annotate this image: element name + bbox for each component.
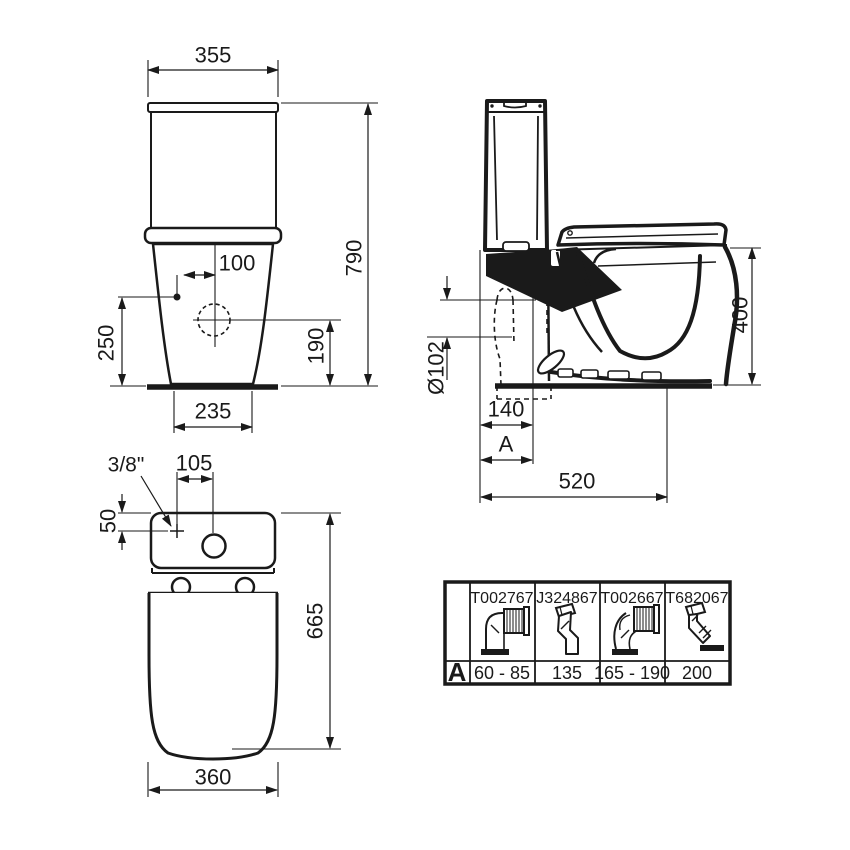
flush-rim-curl: [594, 249, 616, 263]
foot-line: [551, 372, 710, 381]
dim-235-label: 235: [195, 399, 232, 424]
dim-102-label: Ø102: [424, 341, 449, 395]
dim-360-label: 360: [195, 765, 232, 790]
table-row-label: A: [448, 657, 467, 687]
table-value-3: 165 - 190: [594, 663, 670, 683]
dim-790-label: 790: [342, 240, 367, 277]
table-value-2: 135: [552, 663, 582, 683]
cistern-lid-front: [148, 103, 278, 112]
outlet-adapter-table: T002767 J324867 T002667 T682067: [445, 582, 730, 687]
wc-dimension-drawing: 355 790 100 250 190 235: [0, 0, 850, 850]
cistern-lock-detail: [503, 242, 529, 251]
dim-A-label: A: [499, 432, 514, 457]
dim-665-label: 665: [303, 603, 328, 640]
flush-button-hole: [203, 535, 226, 558]
technical-drawing-sheet: 355 790 100 250 190 235: [0, 0, 850, 850]
seat-outline-top: [149, 593, 277, 759]
dim-105-label: 105: [176, 451, 213, 476]
side-section-view: Ø102 140 A 520 400: [424, 101, 761, 503]
dim-50-label: 50: [96, 509, 121, 533]
dim-355-label: 355: [195, 43, 232, 68]
seat-front: [145, 228, 281, 243]
dim-250-label: 250: [94, 325, 119, 362]
dim-400-label: 400: [728, 297, 753, 334]
front-elevation-view: 355 790 100 250 190 235: [94, 43, 378, 433]
cistern-body-front: [151, 112, 276, 228]
table-value-1: 60 - 85: [474, 663, 530, 683]
inlet-size-label: 3/8": [108, 453, 145, 476]
table-value-4: 200: [682, 663, 712, 683]
table-code-1: T002767: [470, 590, 533, 607]
dim-520-label: 520: [559, 469, 596, 494]
top-plan-view: 3/8" 105 50 665 360: [96, 451, 341, 797]
dim-190-label: 190: [304, 328, 329, 365]
dim-140-label: 140: [488, 397, 525, 422]
seat-hinge-pin: [568, 231, 572, 235]
dim-100-label: 100: [219, 251, 256, 276]
